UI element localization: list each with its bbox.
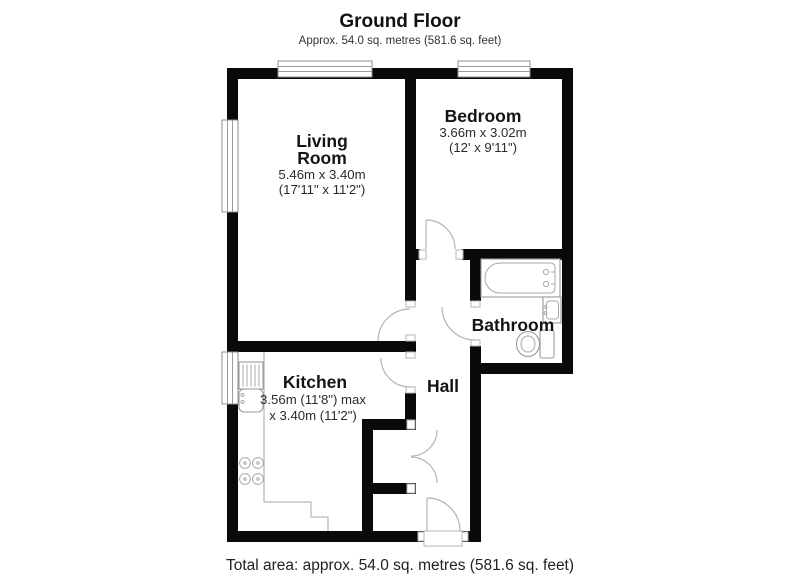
window-icon	[458, 61, 530, 77]
wall-hall-left	[405, 393, 416, 419]
wall-bedroom-bottom-b	[462, 249, 573, 260]
page-subtitle: Approx. 54.0 sq. metres (581.6 sq. feet)	[299, 35, 502, 47]
bathroom-name: Bathroom	[472, 315, 555, 335]
wall-bathroom-bottom	[470, 363, 573, 374]
stove-icon	[240, 458, 264, 485]
wall-kitchen-right	[362, 419, 373, 542]
bathroom-label: Bathroom	[472, 315, 555, 335]
kitchen-dims-line1: 3.56m (11'8") max	[260, 392, 366, 407]
wall-livingroom-bottom	[238, 341, 416, 352]
living-room-dims-metric: 5.46m x 3.40m	[278, 167, 365, 182]
total-area-text: Total area: approx. 54.0 sq. metres (581…	[226, 557, 574, 574]
bedroom-name: Bedroom	[445, 106, 522, 126]
door-arc-icon	[411, 430, 437, 456]
kitchen-label: Kitchen 3.56m (11'8") max x 3.40m (11'2"…	[260, 372, 366, 423]
door-arc-icon	[426, 220, 455, 249]
window-icon	[222, 120, 238, 212]
bedroom-label: Bedroom 3.66m x 3.02m (12' x 9'11")	[439, 106, 526, 155]
hall-name: Hall	[427, 376, 459, 396]
kitchen-dims-line2: x 3.40m (11'2")	[269, 408, 357, 423]
floor-plan-page: Ground Floor Approx. 54.0 sq. metres (58…	[0, 0, 800, 582]
wall-right	[562, 68, 573, 374]
wall-hall-right	[470, 346, 481, 542]
kitchen-name: Kitchen	[283, 372, 347, 392]
door-arc-icon	[378, 309, 410, 341]
door-arc-icon	[442, 307, 475, 340]
bedroom-dims-imperial: (12' x 9'11")	[449, 140, 517, 155]
wall-bottom-left	[227, 531, 424, 542]
page-title: Ground Floor	[339, 11, 461, 32]
bedroom-dims-metric: 3.66m x 3.02m	[439, 125, 526, 140]
wall-bathroom-left-upper	[470, 260, 481, 301]
living-room-label: Living Room 5.46m x 3.40m (17'11" x 11'2…	[278, 131, 365, 197]
wall-livingroom-bedroom	[405, 68, 416, 301]
entrance-threshold	[424, 531, 462, 546]
door-arc-icon	[381, 358, 410, 387]
window-icon	[222, 352, 238, 404]
hall-label: Hall	[427, 376, 459, 396]
living-room-dims-imperial: (17'11" x 11'2")	[279, 182, 365, 197]
door-arc-icon	[427, 498, 460, 531]
wall-bedroom-bottom-a	[405, 249, 420, 260]
window-icon	[278, 61, 372, 77]
floor-plan: Ground Floor Approx. 54.0 sq. metres (58…	[0, 0, 800, 582]
door-arc-icon	[411, 457, 437, 483]
bathtub-icon	[481, 259, 560, 297]
living-room-name-line2: Room	[297, 148, 347, 168]
